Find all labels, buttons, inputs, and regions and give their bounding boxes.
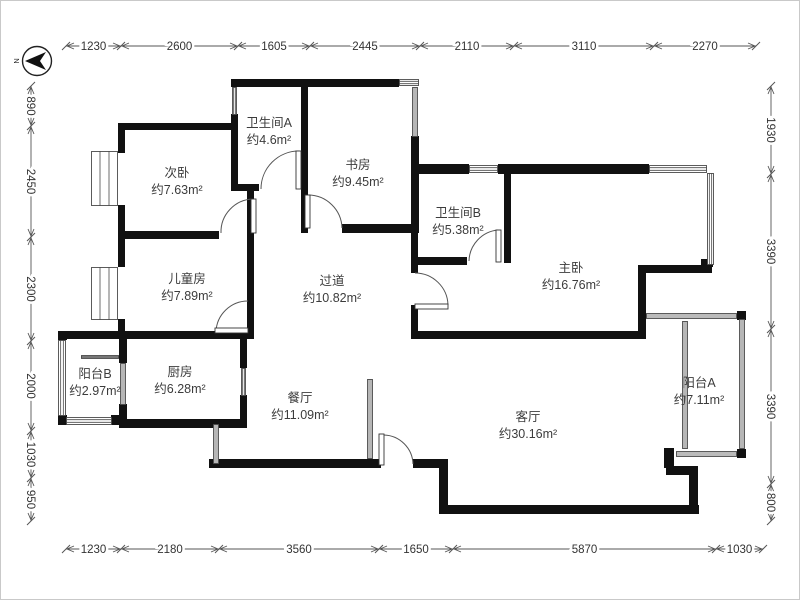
dimension-value: 2180: [157, 544, 183, 556]
window-symbol: [92, 267, 118, 320]
dimension-value: 2270: [692, 41, 718, 53]
room-name: 客厅: [515, 409, 540, 424]
room-name: 阳台A: [682, 375, 716, 390]
dimension-value: 3390: [764, 394, 776, 420]
dimension-value: 1930: [764, 117, 776, 143]
room-label-7: 阳台B约2.97m²: [69, 366, 120, 398]
dimension-value: 3390: [764, 239, 776, 265]
door-symbol: [261, 151, 301, 189]
window-symbol: [413, 87, 418, 137]
doors-layer: [215, 151, 501, 465]
dimension-value: 1230: [81, 41, 107, 53]
room-area: 约7.63m²: [151, 182, 202, 197]
room-area: 约7.11m²: [674, 392, 724, 407]
dimension-value: 1650: [403, 544, 429, 556]
room-name: 主卧: [558, 261, 583, 275]
room-name: 书房: [345, 157, 370, 172]
room-area: 约6.28m²: [154, 381, 205, 396]
room-name: 厨房: [167, 364, 192, 379]
floor-plan-page: 次卧约7.63m²卫生间A约4.6m²书房约9.45m²卫生间B约5.38m²主…: [0, 0, 800, 600]
room-name: 过道: [319, 274, 345, 288]
window-symbol: [233, 87, 237, 115]
room-label-10: 客厅约30.16m²: [499, 409, 557, 441]
room-label-1: 卫生间A约4.6m²: [246, 116, 293, 147]
room-label-4: 主卧约16.76m²: [542, 261, 600, 292]
dimension-value: 950: [24, 490, 36, 509]
room-area: 约2.97m²: [69, 383, 120, 398]
room-label-0: 次卧约7.63m²: [151, 166, 202, 197]
dimension-value: 1030: [727, 544, 753, 556]
room-label-3: 卫生间B约5.38m²: [432, 206, 483, 237]
window-symbol: [242, 368, 246, 396]
room-label-11: 阳台A约7.11m²: [674, 375, 724, 407]
dimension-value: 2000: [24, 373, 36, 399]
room-area: 约16.76m²: [542, 277, 600, 292]
dimension-value: 2600: [167, 41, 193, 53]
window-symbol: [649, 166, 707, 173]
dimensions-layer: 1230260016052445211031102270123021803560…: [24, 41, 776, 556]
door-symbol: [221, 199, 256, 233]
room-area: 约7.89m²: [161, 288, 212, 303]
window-symbol: [81, 356, 119, 359]
floor-plan: 次卧约7.63m²卫生间A约4.6m²书房约9.45m²卫生间B约5.38m²主…: [1, 1, 800, 600]
dimension-value: 1230: [81, 544, 107, 556]
window-symbol: [676, 452, 737, 457]
window-symbol: [708, 173, 714, 265]
dimension-value: 1605: [261, 41, 287, 53]
room-label-2: 书房约9.45m²: [332, 157, 383, 189]
room-area: 约4.6m²: [247, 132, 291, 147]
window-symbol: [92, 151, 118, 206]
dimension-value: 2300: [24, 276, 36, 302]
room-label-9: 餐厅约11.09m²: [271, 390, 328, 422]
window-symbol: [740, 319, 745, 449]
window-symbol: [646, 314, 737, 319]
dimension-value: 2110: [455, 41, 480, 53]
dimension-value: 1030: [24, 442, 36, 468]
dimension-value: 800: [764, 493, 776, 512]
dimension-value: 3110: [572, 41, 597, 53]
dimension-value: 2450: [24, 169, 36, 195]
window-symbol: [368, 379, 373, 459]
room-name: 儿童房: [168, 271, 206, 286]
north-compass-icon: N: [12, 47, 52, 76]
door-symbol: [415, 273, 448, 309]
window-symbol: [59, 340, 66, 416]
room-label-6: 过道约10.82m²: [303, 274, 361, 305]
door-symbol: [215, 301, 248, 333]
window-symbol: [121, 363, 126, 405]
room-name: 阳台B: [78, 366, 111, 381]
room-name: 卫生间B: [435, 206, 481, 220]
compass-north-label: N: [12, 58, 21, 63]
dimension-value: 3560: [286, 544, 312, 556]
window-symbol: [399, 80, 419, 86]
door-symbol: [379, 434, 413, 465]
window-symbol: [66, 418, 112, 425]
window-symbol: [469, 166, 498, 173]
room-area: 约30.16m²: [499, 426, 557, 441]
room-area: 约9.45m²: [332, 174, 383, 189]
dimension-value: 890: [24, 96, 36, 115]
dimension-value: 5870: [572, 544, 598, 556]
door-symbol: [305, 195, 342, 228]
window-symbol: [214, 424, 219, 464]
room-name: 次卧: [164, 166, 189, 180]
dimension-value: 2445: [352, 41, 378, 53]
room-label-5: 儿童房约7.89m²: [161, 271, 212, 303]
room-area: 约5.38m²: [432, 222, 483, 237]
room-name: 卫生间A: [246, 116, 293, 130]
room-area: 约11.09m²: [271, 407, 328, 422]
room-area: 约10.82m²: [303, 290, 361, 305]
room-name: 餐厅: [287, 390, 312, 405]
room-label-8: 厨房约6.28m²: [154, 364, 205, 396]
